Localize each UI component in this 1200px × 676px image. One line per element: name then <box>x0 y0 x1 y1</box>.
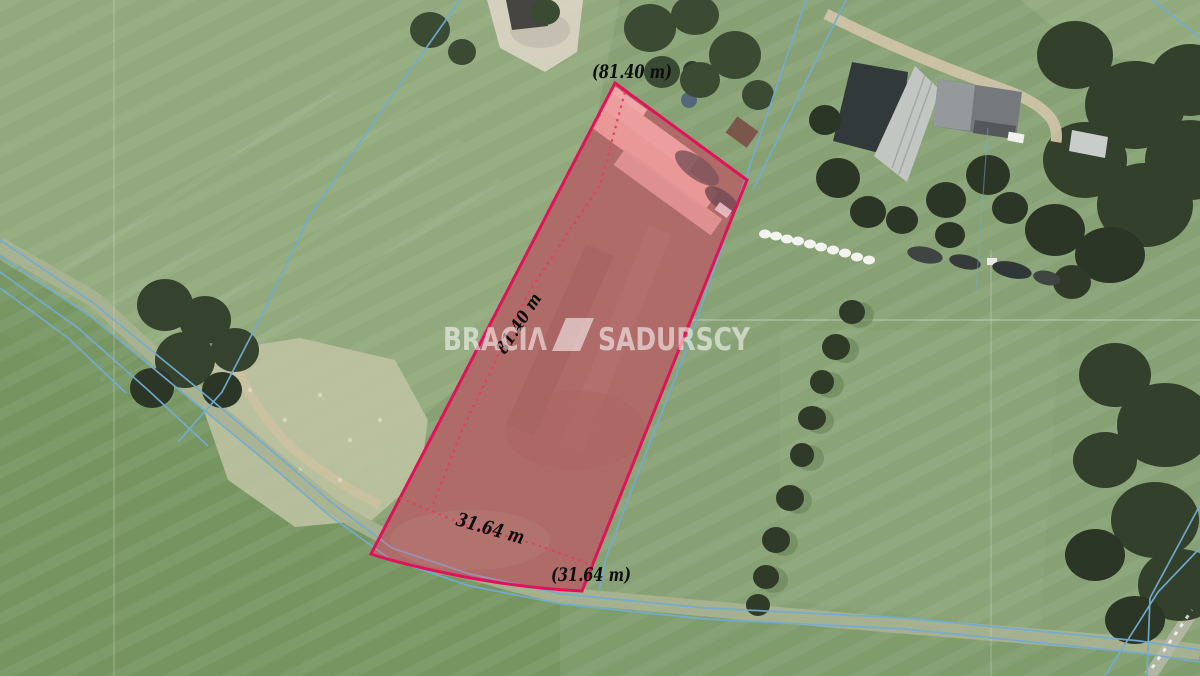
label-bottom-width-outer: (31.64 m) <box>551 564 631 586</box>
map-canvas: (81.40 m) 81.40 m 31.64 m (31.64 m) BRAC… <box>0 0 1200 676</box>
watermark-text-right: SADURSCY <box>598 322 750 358</box>
watermark-text-left: BRACIΛ <box>443 322 547 358</box>
aerial-map: (81.40 m) 81.40 m 31.64 m (31.64 m) BRAC… <box>0 0 1200 676</box>
label-top-length: (81.40 m) <box>592 61 672 83</box>
